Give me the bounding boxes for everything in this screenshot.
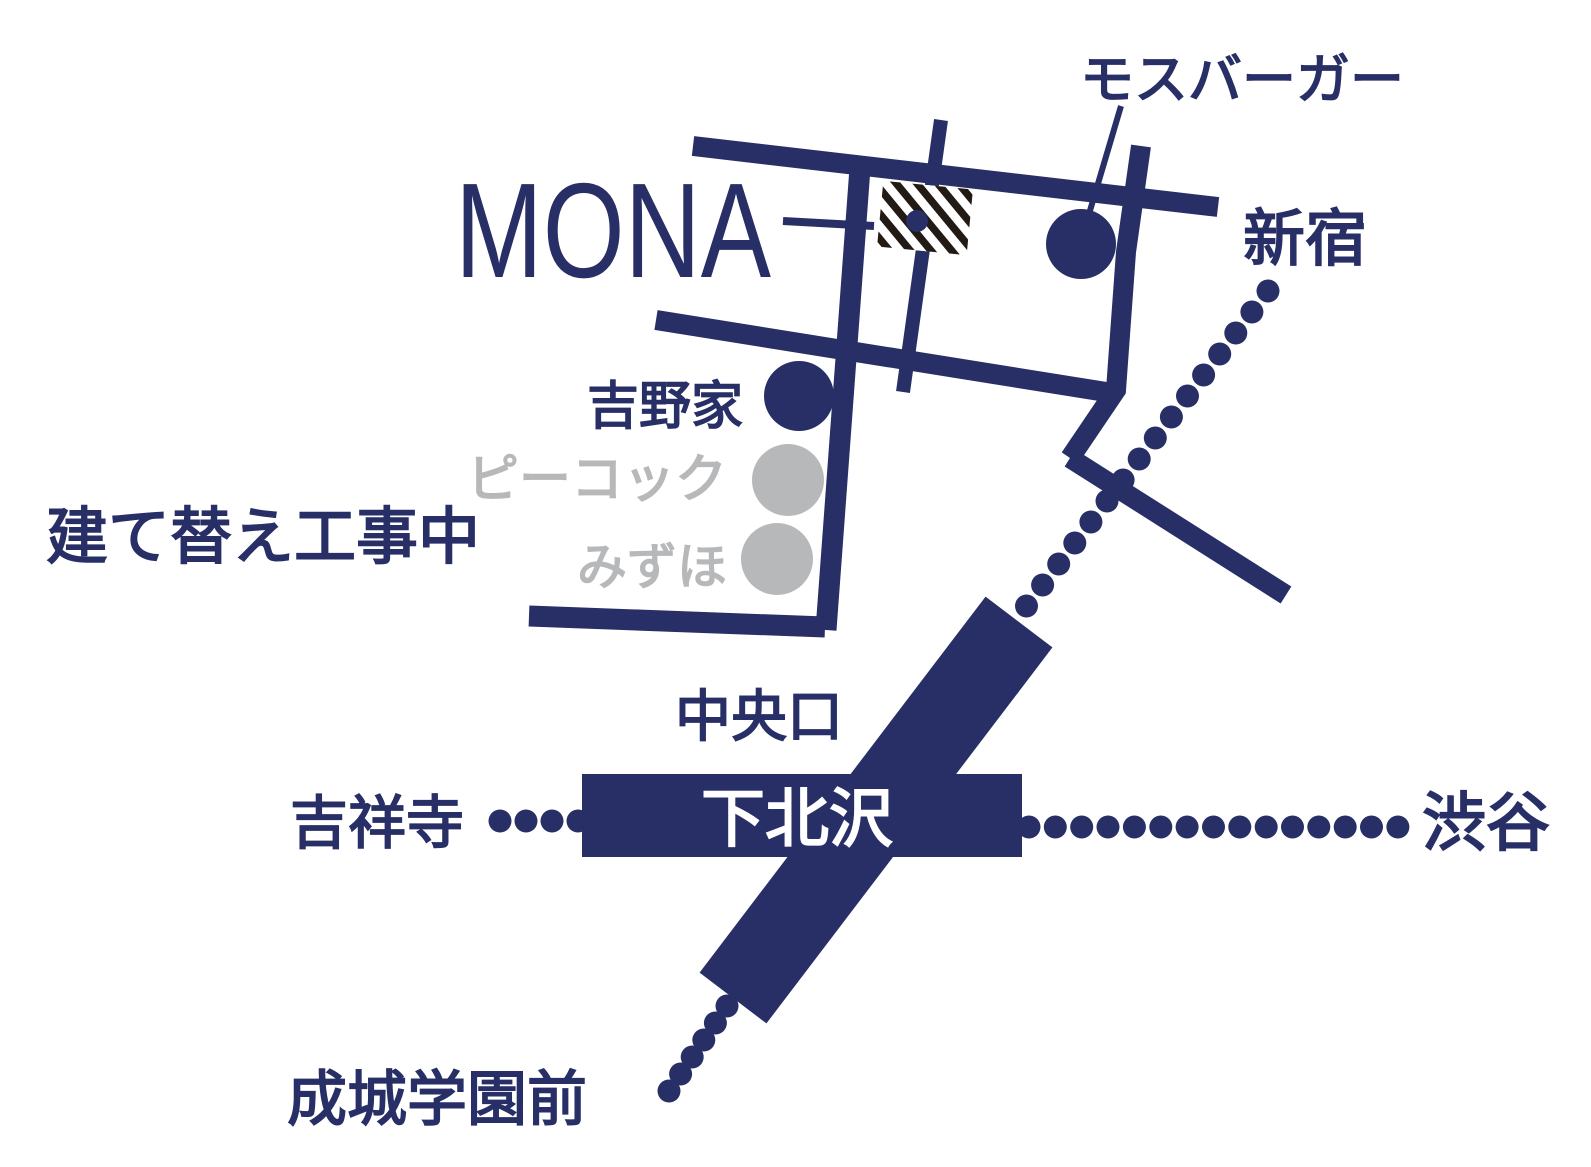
mona-location-dot xyxy=(906,210,928,232)
rail-dot xyxy=(1228,816,1251,839)
rail-dot xyxy=(1096,490,1119,513)
kichijoji-label: 吉祥寺 xyxy=(290,791,464,856)
mosburger-marker-circle xyxy=(1046,209,1116,279)
rail-dot xyxy=(1112,469,1135,492)
rail-dot xyxy=(1208,343,1231,366)
rail-dot xyxy=(1160,406,1183,429)
rail-dot xyxy=(1255,816,1278,839)
rail-dot xyxy=(1307,816,1330,839)
rail-dot xyxy=(1224,322,1247,345)
mizuho-marker-circle xyxy=(741,523,813,595)
access-map-page: MONA モスバーガー 新宿 吉野家 ピーコック みずほ 建て替え工事中 中央口… xyxy=(0,0,1591,1167)
rail-dot xyxy=(1047,553,1070,576)
rail-dot xyxy=(1202,816,1225,839)
rail-dot xyxy=(1015,595,1038,618)
rail-dot xyxy=(541,810,564,833)
access-map: MONA モスバーガー 新宿 吉野家 ピーコック みずほ 建て替え工事中 中央口… xyxy=(0,0,1591,1167)
rail-dot xyxy=(515,810,538,833)
station-name-label: 下北沢 xyxy=(701,783,894,855)
shibuya-label: 渋谷 xyxy=(1422,787,1550,859)
venue-title: MONA xyxy=(455,155,771,306)
rail-dot xyxy=(1097,816,1120,839)
road-bottom xyxy=(529,616,825,627)
rail-dot xyxy=(1044,816,1067,839)
mizuho-label: みずほ xyxy=(577,539,727,595)
rail-dot xyxy=(1128,448,1151,471)
yoshinoya-label: 吉野家 xyxy=(587,378,743,436)
central-exit-label: 中央口 xyxy=(675,685,843,748)
inokashira-dots-kichijoji xyxy=(489,810,590,833)
rail-dot xyxy=(1079,511,1102,534)
peacock-label: ピーコック xyxy=(467,451,727,509)
mona-pointer-line xyxy=(783,221,874,226)
rail-dot xyxy=(1257,280,1280,303)
rail-dot xyxy=(1176,385,1199,408)
odakyu-dots-seijo xyxy=(658,995,739,1103)
rail-dot xyxy=(1281,816,1304,839)
seijogakuen-mae-label: 成城学園前 xyxy=(287,1066,587,1133)
mosburger-label: モスバーガー xyxy=(1080,50,1404,110)
rail-dot xyxy=(1031,574,1054,597)
construction-note-label: 建て替え工事中 xyxy=(46,503,480,572)
yoshinoya-marker-circle xyxy=(764,361,834,431)
rail-dot xyxy=(1144,427,1167,450)
inokashira-dots-shibuya xyxy=(1018,816,1410,839)
rail-dot xyxy=(1123,816,1146,839)
rail-dot xyxy=(1240,301,1263,324)
rail-dot xyxy=(1192,364,1215,387)
rail-dot xyxy=(1360,816,1383,839)
rail-dot xyxy=(489,810,512,833)
rail-dot xyxy=(1176,816,1199,839)
rail-dot xyxy=(1334,816,1357,839)
rail-dot xyxy=(658,1080,681,1103)
shinjuku-label: 新宿 xyxy=(1243,205,1367,274)
rail-dot xyxy=(1149,816,1172,839)
peacock-marker-circle xyxy=(752,444,824,516)
rail-dot xyxy=(1386,816,1409,839)
rail-dot xyxy=(1070,816,1093,839)
road-southeast-diagonal xyxy=(1070,458,1286,595)
rail-dot xyxy=(1063,532,1086,555)
